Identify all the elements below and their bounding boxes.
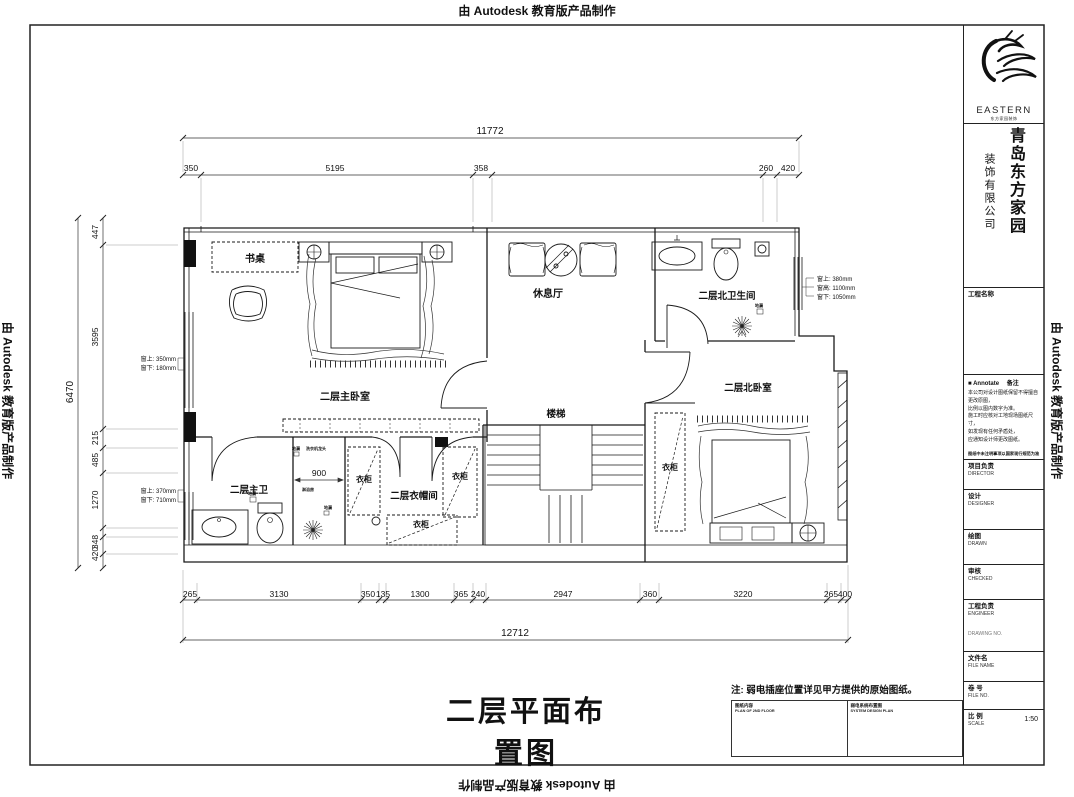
svg-text:窗高: 1100mm: 窗高: 1100mm [817, 284, 855, 292]
field-file-name: 文件名FILE NAME [964, 652, 1044, 682]
svg-text:洗衣机龙头: 洗衣机龙头 [306, 445, 326, 451]
svg-text:400: 400 [838, 589, 852, 599]
label-wardrobe-1: 衣柜 [356, 474, 372, 484]
brand-name: EASTERN [968, 105, 1040, 116]
svg-text:2947: 2947 [554, 589, 573, 599]
sink-basin [659, 247, 695, 265]
field-engineer: 工程负责ENGINEER DRAWING NO. [964, 600, 1044, 652]
footer-table: 图纸内容 PLAN OF 2ND FLOOR 弱电系统布置图 SYSTEM DE… [731, 700, 963, 757]
field-director: 项目负责DIRECTOR [964, 460, 1044, 490]
low-cabinet [283, 419, 479, 432]
svg-text:1300: 1300 [411, 589, 430, 599]
notice-paragraph: 本公司对设计图纸保留不得擅自更改原图， 比例以图内数字为准。 施工时应核对工地现… [968, 390, 1040, 444]
label-north-bath: 二层北卫生间 [698, 290, 755, 302]
svg-text:358: 358 [474, 163, 488, 173]
company-name-main: 青岛东方家园 [1003, 127, 1027, 284]
label-wardrobe-3: 衣柜 [413, 519, 429, 529]
field-scale: 比 例SCALE 1:50 [964, 710, 1044, 765]
svg-text:窗上: 380mm: 窗上: 380mm [817, 275, 852, 283]
brand-subtitle: 东方家园装饰 [968, 116, 1040, 122]
logo-section: EASTERN 东方家园装饰 [964, 25, 1044, 124]
label-master-bedroom: 二层主卧室 [320, 390, 370, 403]
armchair [229, 286, 266, 321]
knob [372, 517, 380, 525]
label-wardrobe-north: 衣柜 [662, 462, 678, 472]
field-file-no: 卷 号FILE NO. [964, 682, 1044, 710]
shower-width-dim: 900 [312, 468, 326, 478]
svg-text:窗下: 710mm: 窗下: 710mm [141, 496, 176, 504]
company-section: 青岛东方家园 装饰有限公司 [964, 124, 1044, 288]
headboard [329, 242, 422, 254]
svg-text:窗上: 370mm: 窗上: 370mm [141, 487, 176, 495]
sheet-frame [30, 25, 1044, 765]
label-closet: 二层衣帽间 [390, 490, 438, 502]
svg-text:窗下: 1050mm: 窗下: 1050mm [817, 293, 856, 301]
north-bath-fixtures [652, 235, 769, 337]
rug-master [307, 254, 446, 364]
lounge-chair-right [580, 243, 616, 276]
svg-text:地漏: 地漏 [292, 445, 300, 451]
svg-text:淋浴房: 淋浴房 [302, 486, 314, 492]
svg-text:1270: 1270 [90, 490, 100, 509]
svg-text:350: 350 [184, 163, 198, 173]
svg-text:3220: 3220 [734, 589, 753, 599]
svg-text:135: 135 [376, 589, 390, 599]
bed-master [331, 254, 420, 348]
company-name-sub: 装饰有限公司 [981, 127, 997, 284]
note-text: 注: 弱电插座位置详见甲方提供的原始图纸。 [731, 682, 917, 696]
staircase [485, 425, 645, 545]
drawing-no-label: DRAWING NO. [968, 631, 1040, 637]
svg-text:3595: 3595 [90, 327, 100, 346]
north-bedroom-furniture [655, 413, 824, 543]
svg-text:447: 447 [90, 225, 100, 239]
shower-dim-arrows [295, 478, 343, 482]
svg-text:265: 265 [824, 589, 838, 599]
cad-sheet: 由 Autodesk 教育版产品制作 由 Autodesk 教育版产品制作 由 … [0, 0, 1074, 797]
drawing-title: 二层平面布置图 [436, 688, 616, 772]
pillow [336, 257, 374, 273]
toilet-master [257, 503, 283, 543]
svg-text:365: 365 [454, 589, 468, 599]
svg-text:240: 240 [471, 589, 485, 599]
lounge-chair-left [509, 243, 545, 276]
round-table [545, 244, 577, 276]
dim-bottom-total: 12712 [501, 628, 529, 639]
label-lounge: 休息厅 [532, 287, 563, 300]
svg-text:215: 215 [90, 431, 100, 445]
master-bedroom-furniture [212, 242, 479, 432]
pillow [379, 257, 417, 273]
svg-text:420: 420 [90, 547, 100, 561]
svg-text:地漏: 地漏 [324, 504, 332, 510]
bed-north [712, 440, 790, 523]
dim-top-total: 11772 [476, 126, 504, 137]
label-stairs: 楼梯 [546, 408, 566, 420]
svg-text:260: 260 [759, 163, 773, 173]
scale-value: 1:50 [1024, 716, 1038, 723]
lounge-furniture [509, 243, 616, 276]
svg-text:420: 420 [781, 163, 795, 173]
svg-text:350: 350 [361, 589, 375, 599]
footer-cell-right: 弱电系统布置图 SYSTEM DESIGN PLAN [847, 701, 963, 756]
fixture-labels: 地漏 洗衣机龙头 淋浴房 地漏 地漏 地漏 [248, 302, 763, 510]
label-desk: 书桌 [245, 252, 265, 265]
svg-text:265: 265 [183, 589, 197, 599]
vanity-master [192, 510, 248, 544]
corner-drain [755, 242, 769, 256]
floor-plan-canvas: 11772 350 5195 358 260 420 6470 447 3595… [0, 0, 1074, 797]
rug-north [697, 419, 812, 524]
notice-footer: 图纸中未注明事项以国家现行规范为准 [968, 451, 1039, 457]
label-wardrobe-2: 衣柜 [452, 471, 468, 481]
footer-cell-left: 图纸内容 PLAN OF 2ND FLOOR [732, 701, 847, 756]
sink-master [202, 517, 236, 537]
plant-symbol [732, 316, 752, 336]
annotate-section: ■ Annotate 备注 本公司对设计图纸保留不得擅自更改原图， 比例以图内数… [964, 375, 1044, 460]
svg-text:地漏: 地漏 [755, 302, 763, 308]
field-drawn: 绘图DRAWN [964, 530, 1044, 565]
annotate-label: Annotate [973, 381, 999, 387]
field-checked: 审核CHECKED [964, 565, 1044, 600]
svg-text:5195: 5195 [326, 163, 345, 173]
dim-left-total: 6470 [65, 380, 76, 403]
svg-text:窗下: 180mm: 窗下: 180mm [141, 364, 176, 372]
shower-drain-symbol [303, 520, 323, 540]
svg-text:窗上: 350mm: 窗上: 350mm [141, 355, 176, 363]
eastern-logo [968, 28, 1041, 100]
svg-text:485: 485 [90, 453, 100, 467]
toilet-north [712, 239, 740, 280]
annotate-suffix: 备注 [1007, 381, 1019, 387]
svg-text:3130: 3130 [270, 589, 289, 599]
svg-text:地漏: 地漏 [248, 490, 256, 496]
vanity-counter [652, 242, 702, 270]
annotate-bullet: ■ [968, 381, 972, 387]
project-name-section: 工程名称 [964, 288, 1044, 375]
label-north-bedroom: 二层北卧室 [724, 382, 772, 394]
field-designer: 设计DESIGNER [964, 490, 1044, 530]
title-block: EASTERN 东方家园装饰 青岛东方家园 装饰有限公司 工程名称 ■ Anno… [963, 25, 1044, 765]
svg-text:360: 360 [643, 589, 657, 599]
